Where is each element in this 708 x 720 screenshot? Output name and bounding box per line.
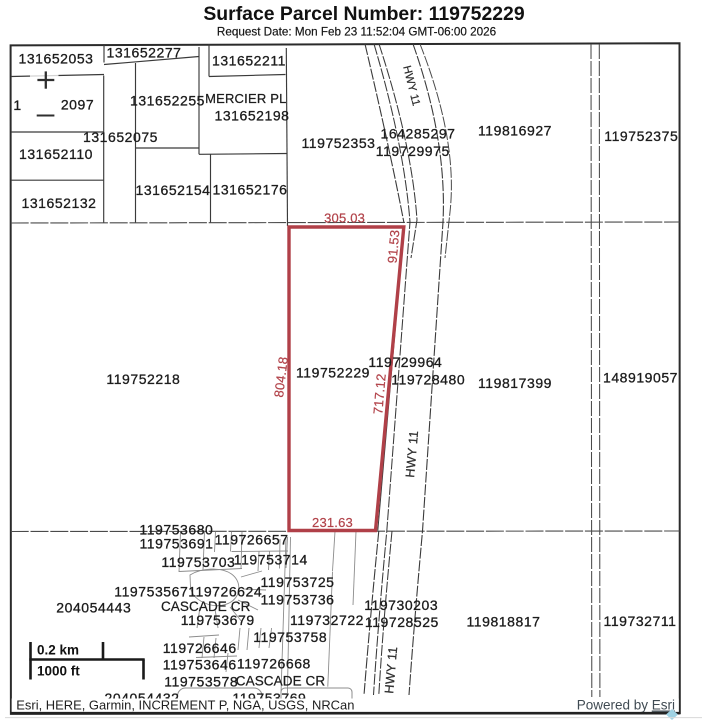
- svg-text:131652154: 131652154: [135, 182, 210, 198]
- svg-text:MERCIER PL: MERCIER PL: [205, 91, 286, 106]
- svg-text:Esri, HERE, Garmin, INCREMENT: Esri, HERE, Garmin, INCREMENT P, NGA, US…: [16, 698, 354, 713]
- svg-text:1: 1: [13, 97, 21, 113]
- svg-text:119753646: 119753646: [163, 657, 237, 673]
- svg-text:131652255: 131652255: [130, 93, 205, 109]
- svg-text:119753758: 119753758: [253, 629, 327, 645]
- svg-text:131652176: 131652176: [212, 182, 287, 198]
- svg-text:119752375: 119752375: [604, 128, 678, 144]
- svg-text:131652132: 131652132: [21, 195, 96, 211]
- svg-text:119753714: 119753714: [234, 552, 308, 568]
- svg-text:119728525: 119728525: [365, 614, 439, 630]
- svg-text:Request Date: Mon Feb 23 11:52: Request Date: Mon Feb 23 11:52:04 GMT-06…: [217, 25, 496, 38]
- svg-text:119729964: 119729964: [368, 354, 442, 370]
- svg-text:Powered by Esri: Powered by Esri: [577, 698, 675, 713]
- svg-text:91.53: 91.53: [385, 229, 403, 264]
- svg-text:119752229: 119752229: [296, 365, 370, 381]
- svg-text:119753691: 119753691: [140, 536, 214, 552]
- svg-text:119753703: 119753703: [161, 554, 235, 570]
- svg-text:Surface Parcel Number: 1197522: Surface Parcel Number: 119752229: [203, 3, 524, 25]
- svg-text:131652211: 131652211: [212, 53, 286, 69]
- svg-text:119729975: 119729975: [376, 143, 450, 159]
- svg-text:119753567: 119753567: [114, 584, 188, 600]
- svg-text:CASCADE CR: CASCADE CR: [161, 599, 251, 614]
- svg-text:119752218: 119752218: [106, 371, 180, 387]
- svg-text:131652198: 131652198: [214, 108, 289, 124]
- svg-text:148919057: 148919057: [603, 370, 678, 386]
- svg-text:2097: 2097: [61, 97, 94, 113]
- svg-text:119818817: 119818817: [467, 614, 541, 630]
- svg-text:CASCADE CR: CASCADE CR: [236, 674, 326, 689]
- svg-text:231.63: 231.63: [312, 515, 353, 530]
- svg-text:164285297: 164285297: [380, 126, 455, 142]
- svg-text:305.03: 305.03: [324, 211, 365, 226]
- svg-text:119726646: 119726646: [163, 640, 237, 656]
- svg-text:119753679: 119753679: [181, 612, 255, 628]
- svg-text:131652277: 131652277: [106, 45, 181, 61]
- svg-text:131652053: 131652053: [18, 51, 93, 67]
- svg-text:119728480: 119728480: [391, 372, 465, 388]
- svg-text:119753725: 119753725: [261, 574, 335, 590]
- svg-text:131652075: 131652075: [83, 129, 158, 145]
- svg-text:119730203: 119730203: [364, 597, 438, 613]
- svg-text:119726657: 119726657: [215, 532, 289, 548]
- svg-text:119726668: 119726668: [237, 656, 311, 672]
- svg-text:119732711: 119732711: [604, 613, 677, 629]
- svg-text:119753578: 119753578: [164, 674, 238, 690]
- svg-text:0.2 km: 0.2 km: [37, 643, 79, 658]
- svg-text:131652110: 131652110: [19, 146, 93, 162]
- svg-text:119732722: 119732722: [290, 612, 364, 628]
- svg-text:119817399: 119817399: [478, 375, 552, 391]
- svg-text:1000 ft: 1000 ft: [37, 664, 80, 679]
- svg-text:119726624: 119726624: [188, 584, 262, 600]
- svg-text:119752353: 119752353: [302, 135, 376, 151]
- svg-text:204054443: 204054443: [56, 600, 131, 616]
- svg-text:119816927: 119816927: [478, 123, 552, 139]
- svg-text:119753736: 119753736: [261, 592, 335, 608]
